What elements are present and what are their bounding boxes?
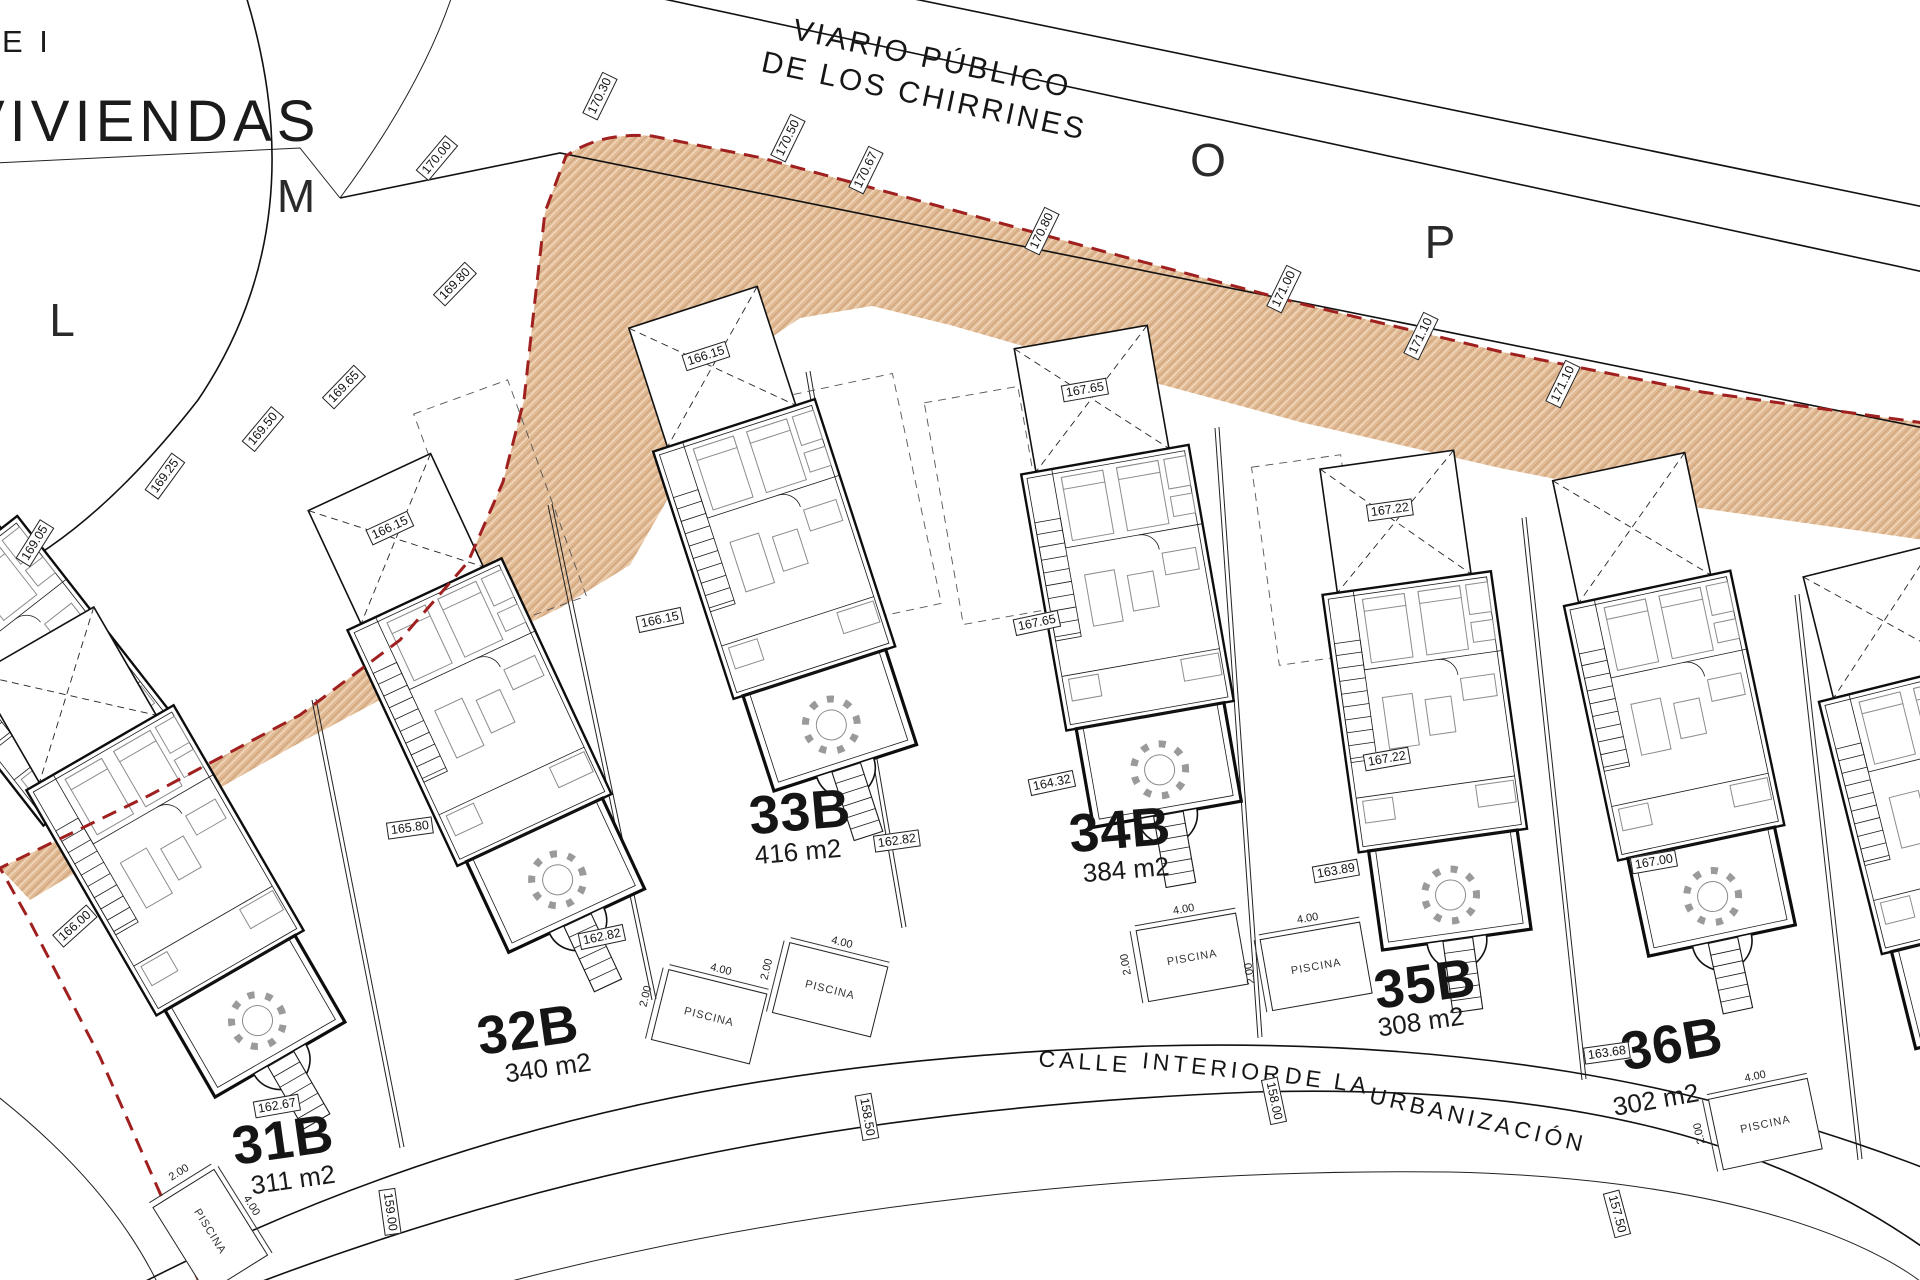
section-letter-m: M <box>277 169 315 223</box>
house-unit-right-partial <box>1789 539 1920 1121</box>
site-plan: E I VIVIENDAS VIARIO PÚBLICO DE LOS CHIR… <box>0 0 1920 1280</box>
interior-street-word-la: LA <box>1332 1068 1372 1100</box>
sheet-title-line2: VIVIENDAS <box>0 88 320 155</box>
house-unit-33b <box>615 280 949 862</box>
house-unit-36b <box>1538 448 1820 1028</box>
pool-label: PISCINA <box>1136 913 1249 1003</box>
section-letter-l: L <box>49 293 75 347</box>
interior-street-word-de: DE <box>1283 1062 1326 1094</box>
section-letter-o: O <box>1190 133 1226 187</box>
pool-label: PISCINA <box>1260 922 1373 1012</box>
pool-depth-dim: 2.00 <box>1118 953 1134 976</box>
section-letter-p: P <box>1425 215 1456 269</box>
sheet-title-line1: E I <box>2 24 52 60</box>
pool-depth-dim: 2.00 <box>1242 962 1258 985</box>
pool-label: PISCINA <box>1708 1078 1823 1171</box>
